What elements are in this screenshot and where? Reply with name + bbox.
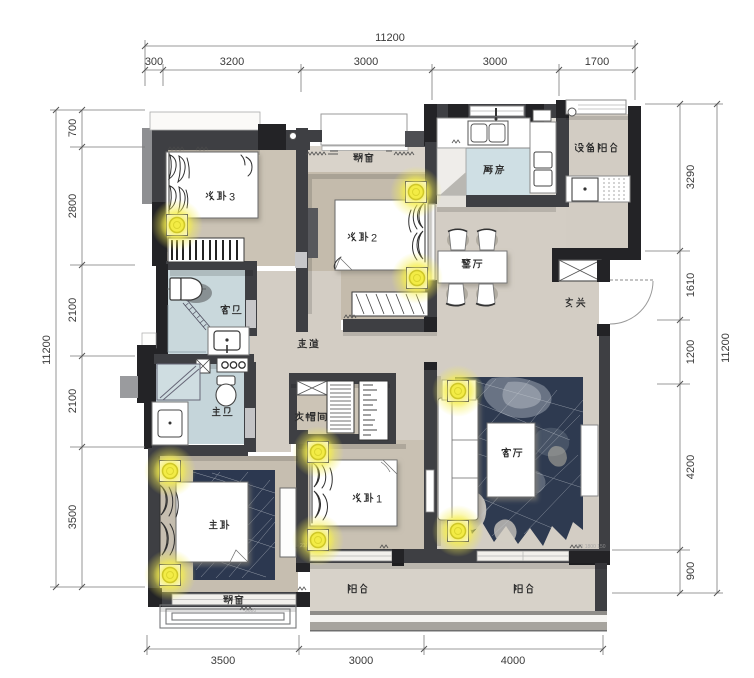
svg-text:11200: 11200 — [375, 32, 405, 44]
svg-text:2: 2 — [371, 233, 377, 245]
svg-text:2800: 2800 — [67, 194, 79, 218]
svg-text:3500: 3500 — [211, 655, 235, 667]
svg-text:2600: 2600 — [245, 608, 256, 614]
svg-text:3000: 3000 — [349, 655, 373, 667]
svg-text:3000: 3000 — [483, 56, 507, 68]
svg-text:2100: 2100 — [67, 389, 79, 413]
svg-text:11200: 11200 — [720, 333, 732, 363]
svg-text:700: 700 — [67, 119, 79, 137]
svg-text:2100: 2100 — [67, 298, 79, 322]
svg-text:11200: 11200 — [41, 335, 53, 365]
svg-text:150 1800 150: 150 1800 150 — [575, 544, 606, 550]
svg-text:1: 1 — [376, 494, 382, 506]
svg-text:3200: 3200 — [220, 56, 244, 68]
svg-text:3: 3 — [229, 192, 235, 204]
svg-text:900: 900 — [685, 562, 697, 580]
svg-text:4000: 4000 — [501, 655, 525, 667]
svg-text:300: 300 — [145, 56, 163, 68]
svg-text:1200: 1200 — [685, 340, 697, 364]
svg-text:3000: 3000 — [354, 56, 378, 68]
svg-text:3290: 3290 — [685, 165, 697, 189]
svg-text:1700: 1700 — [585, 56, 609, 68]
svg-text:3500: 3500 — [67, 505, 79, 529]
svg-text:1610: 1610 — [685, 273, 697, 297]
svg-text:4200: 4200 — [685, 455, 697, 479]
